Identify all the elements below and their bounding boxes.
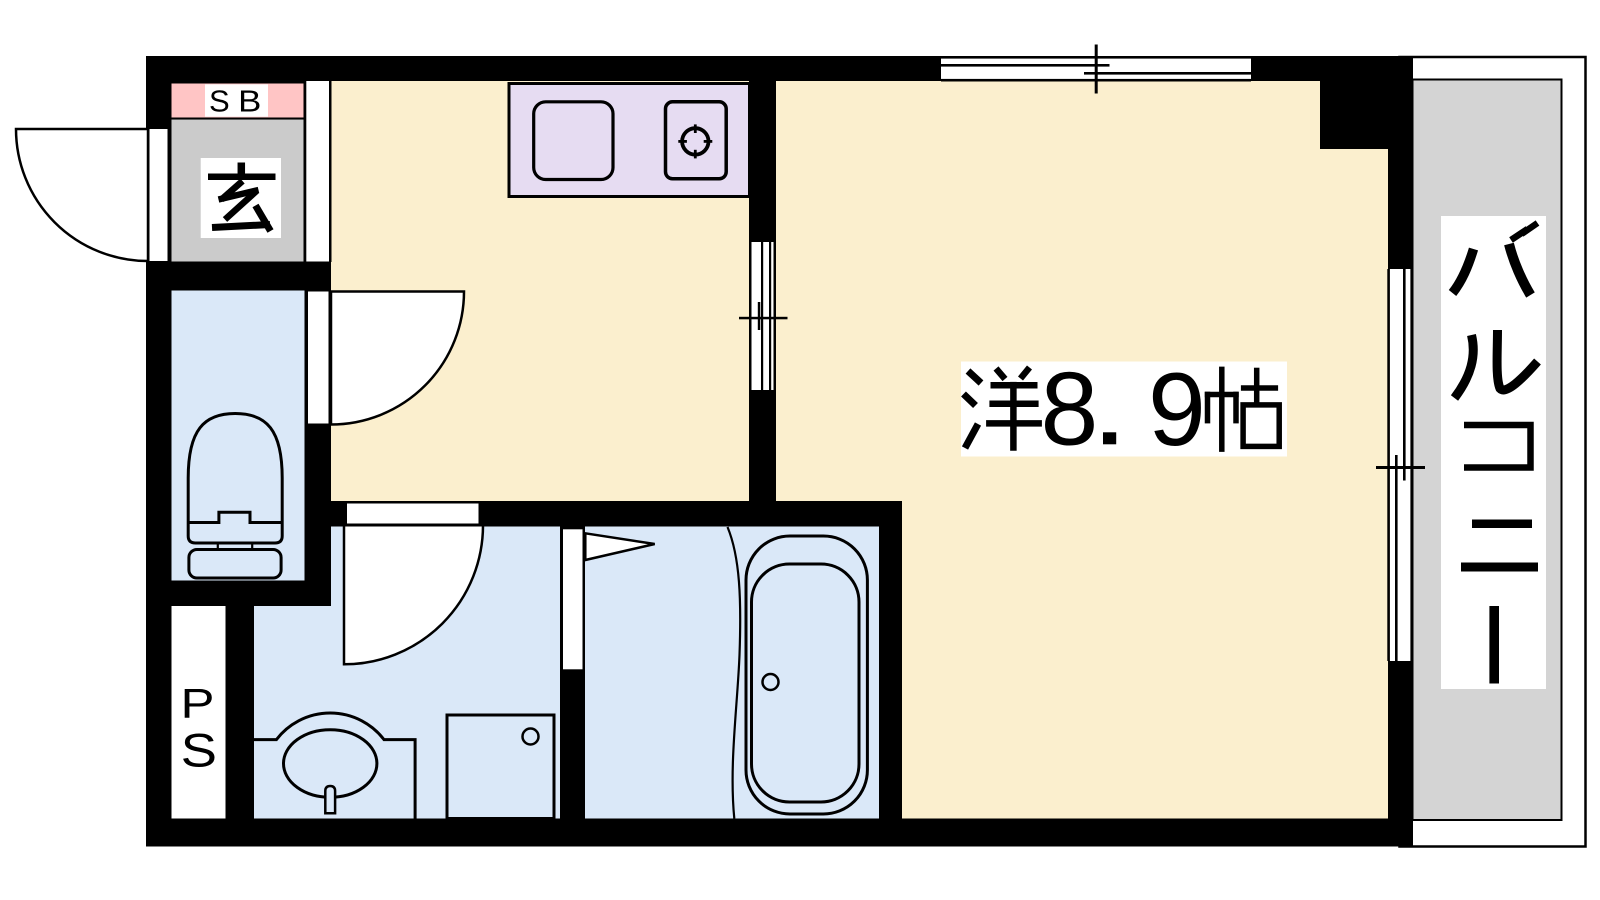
svg-text:B: B <box>238 84 261 119</box>
svg-text:S: S <box>181 723 217 776</box>
svg-text:S: S <box>209 84 230 119</box>
svg-text:8: 8 <box>1041 352 1099 468</box>
svg-text:9: 9 <box>1148 352 1206 468</box>
svg-text:P: P <box>181 679 215 726</box>
